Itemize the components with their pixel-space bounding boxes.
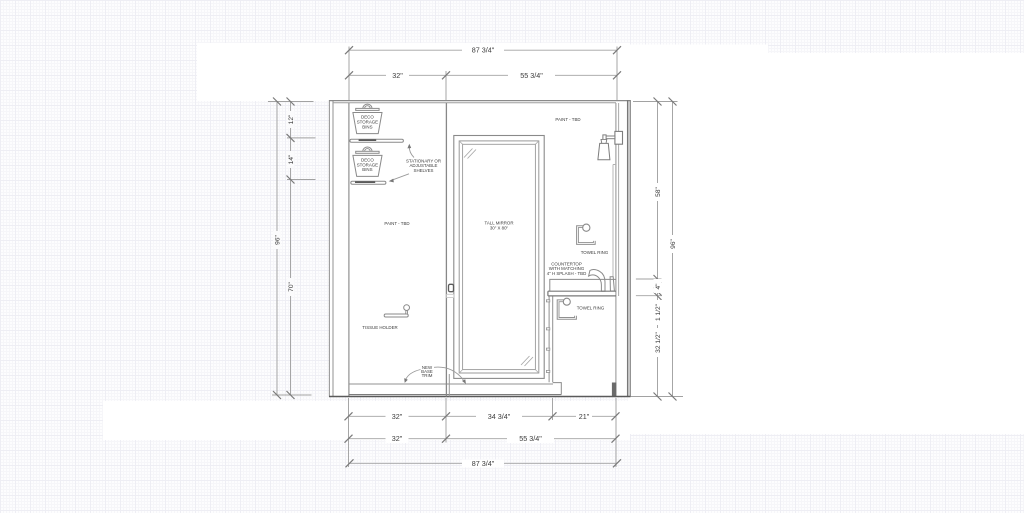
svg-text:BINS: BINS [362,124,372,129]
svg-text:21": 21" [579,412,590,421]
svg-text:TRIM: TRIM [422,373,433,378]
svg-text:34 3/4": 34 3/4" [488,412,511,421]
svg-text:PAINT - TBD: PAINT - TBD [555,117,580,122]
svg-text:96": 96" [275,235,282,245]
svg-text:14": 14" [288,154,295,164]
svg-text:96": 96" [670,239,677,249]
svg-text:32": 32" [392,412,403,421]
svg-text:30" X 80": 30" X 80" [490,226,509,231]
svg-text:TISSUE HOLDER: TISSUE HOLDER [362,325,397,330]
svg-text:32": 32" [392,71,403,80]
svg-text:12": 12" [288,114,295,124]
svg-text:87 3/4": 87 3/4" [472,46,495,55]
svg-text:58": 58" [655,187,662,197]
svg-text:SHELVES: SHELVES [414,168,434,173]
svg-text:70": 70" [288,282,295,292]
svg-text:55 3/4": 55 3/4" [519,434,542,443]
svg-text:4": 4" [655,283,662,290]
svg-text:4" H SPLASH - TBD: 4" H SPLASH - TBD [547,271,587,276]
svg-text:87 3/4": 87 3/4" [472,459,495,468]
svg-text:TOWEL RING: TOWEL RING [581,250,609,255]
svg-text:55 3/4": 55 3/4" [520,71,543,80]
svg-text:1 1/2": 1 1/2" [655,303,662,321]
svg-text:32 1/2": 32 1/2" [655,332,662,353]
svg-text:BINS: BINS [362,167,372,172]
svg-text:PAINT - TBD: PAINT - TBD [384,221,409,226]
svg-text:32": 32" [392,434,403,443]
svg-text:TOWEL RING: TOWEL RING [577,305,605,310]
